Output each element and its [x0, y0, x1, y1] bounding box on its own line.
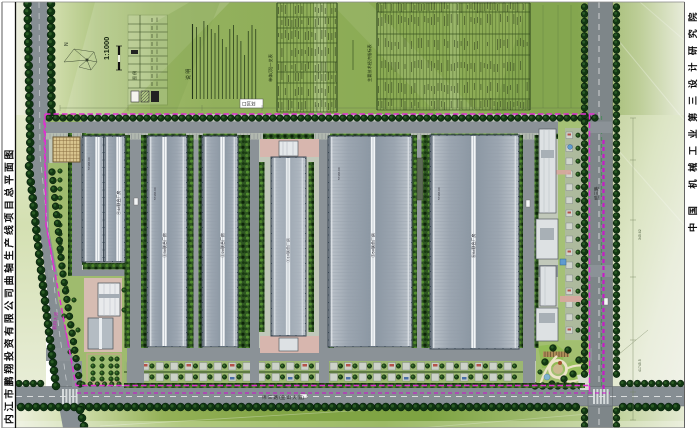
- svg-text:345.62: 345.62: [638, 229, 642, 240]
- svg-text:④4#联合厂房: ④4#联合厂房: [115, 191, 121, 215]
- svg-text:②2#联合厂房: ②2#联合厂房: [219, 233, 225, 257]
- svg-text:内江市鹏翔投资有限公司曲轴生产线项目总平面图: 内江市鹏翔投资有限公司曲轴生产线项目总平面图: [3, 147, 16, 424]
- svg-text:57386.00: 57386.00: [153, 187, 157, 200]
- svg-text:N: N: [64, 42, 70, 46]
- svg-text:图 例: 图 例: [131, 71, 137, 80]
- svg-text:57386.00: 57386.00: [337, 167, 341, 180]
- svg-text:57386.00: 57386.00: [87, 157, 91, 170]
- svg-text:③3#联合厂房: ③3#联合厂房: [161, 233, 167, 257]
- svg-text:单体(项)一览表: 单体(项)一览表: [267, 53, 274, 82]
- svg-text:57386.00: 57386.00: [437, 187, 441, 200]
- svg-text:口区划: 口区划: [242, 101, 256, 108]
- svg-text:经三路: 经三路: [593, 186, 600, 200]
- svg-text:主要技术经济指标表: 主要技术经济指标表: [366, 43, 373, 82]
- svg-text:⑤5#联合厂房: ⑤5#联合厂房: [370, 233, 376, 257]
- svg-text:纬 三 路 (金 山 大 道): 纬 三 路 (金 山 大 道): [262, 394, 304, 401]
- svg-text:1:1000: 1:1000: [102, 37, 111, 60]
- svg-text:中国 机械工业第三设计研究院: 中国 机械工业第三设计研究院: [687, 5, 698, 232]
- svg-text:说 明: 说 明: [185, 69, 192, 80]
- svg-text:⑥6#联合厂房: ⑥6#联合厂房: [470, 234, 476, 258]
- svg-text:41745.5: 41745.5: [638, 359, 642, 372]
